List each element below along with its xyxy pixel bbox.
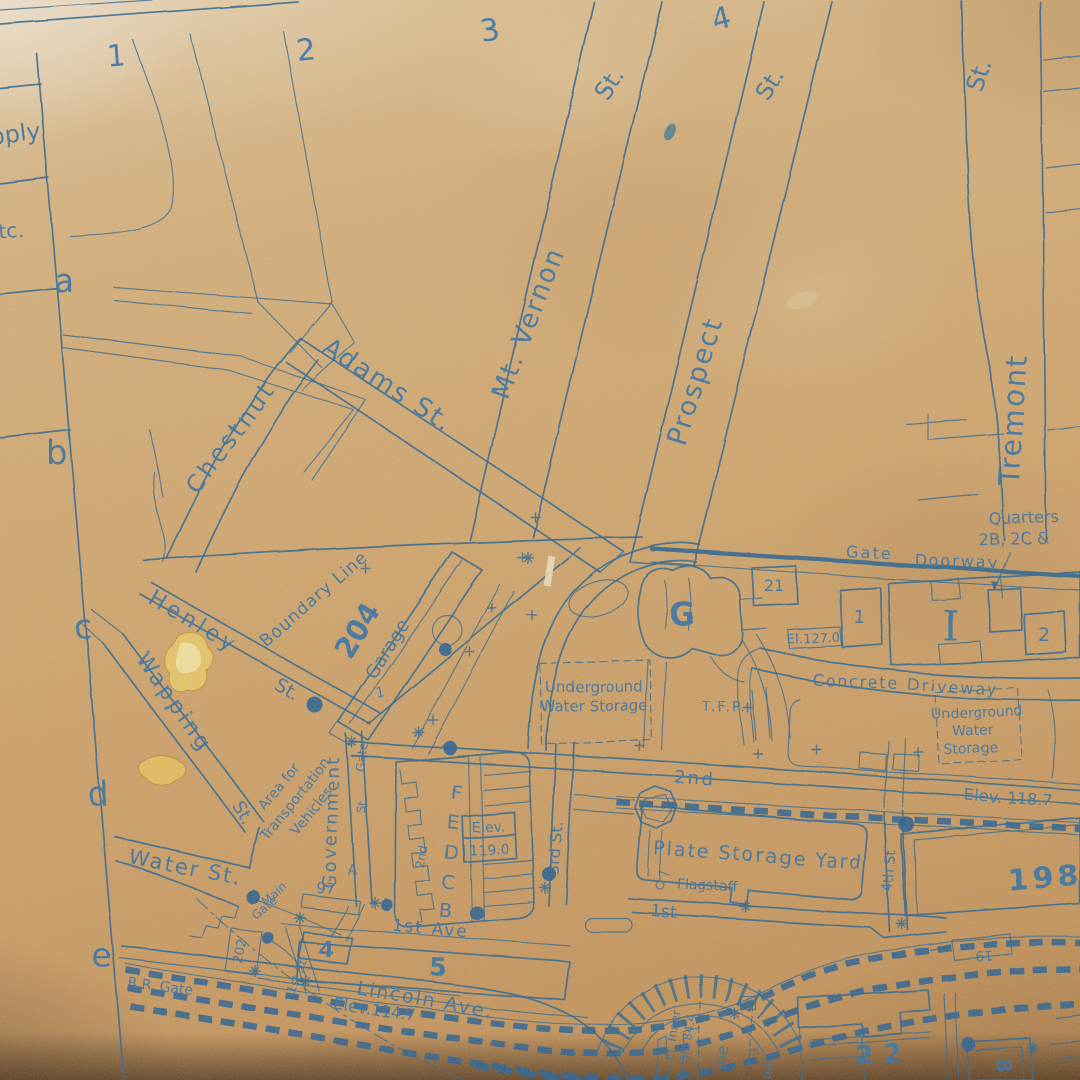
grain-light — [0, 0, 1080, 1080]
map-linework: pply tc. 1 2 3 4 a b c d e — [0, 0, 1080, 1080]
blueprint-map-photo: pply tc. 1 2 3 4 a b c d e — [0, 0, 1080, 1080]
